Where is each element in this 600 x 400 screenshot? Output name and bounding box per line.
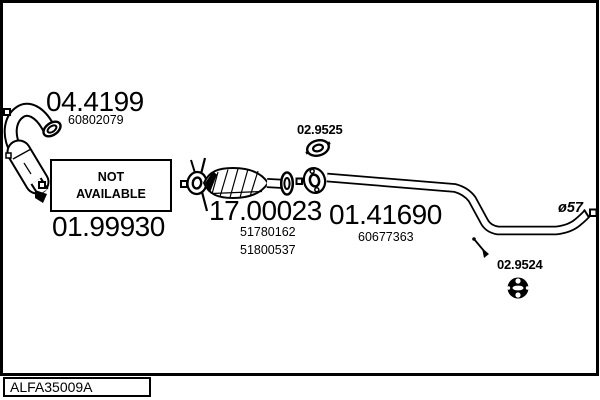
- gasket-icon: [304, 137, 333, 158]
- not-available-line1: NOT: [98, 169, 124, 186]
- part-code-flex[interactable]: 01.99930: [52, 213, 165, 241]
- marker-square: [297, 179, 303, 185]
- exhaust-diagram-canvas: 04.4199 60802079 NOT AVAILABLE 01.99930 …: [0, 0, 600, 400]
- drawing-reference: ALFA35009A: [10, 379, 93, 395]
- stud-nub: [6, 153, 11, 158]
- marker-square: [181, 181, 187, 187]
- pipe-gasket-flange-icon: [301, 166, 327, 195]
- marker-square: [590, 210, 597, 217]
- part-code-pipe[interactable]: 01.41690: [329, 201, 442, 229]
- not-available-box: NOT AVAILABLE: [50, 159, 172, 212]
- pipe-diameter-label: ø57: [558, 201, 583, 216]
- part-code-silencer[interactable]: 17.00023: [209, 197, 322, 225]
- oe-number-silencer-2: 51800537: [240, 244, 296, 257]
- silencer-outlet-flange-ring-icon: [281, 173, 293, 195]
- oe-number-pipe: 60677363: [358, 231, 414, 244]
- marker-square: [39, 182, 45, 188]
- part-code-gasket[interactable]: 02.9525: [297, 123, 343, 136]
- drawing-reference-box: ALFA35009A: [3, 377, 151, 397]
- hanger-pin-icon: [472, 237, 489, 258]
- oe-number-downpipe: 60802079: [68, 114, 124, 127]
- oe-number-silencer-1: 51780162: [240, 226, 296, 239]
- marker-square: [4, 109, 10, 115]
- not-available-line2: AVAILABLE: [76, 186, 146, 203]
- rubber-hanger-icon: [507, 278, 529, 299]
- part-code-hanger[interactable]: 02.9524: [497, 258, 543, 271]
- part-code-downpipe[interactable]: 04.4199: [46, 88, 144, 116]
